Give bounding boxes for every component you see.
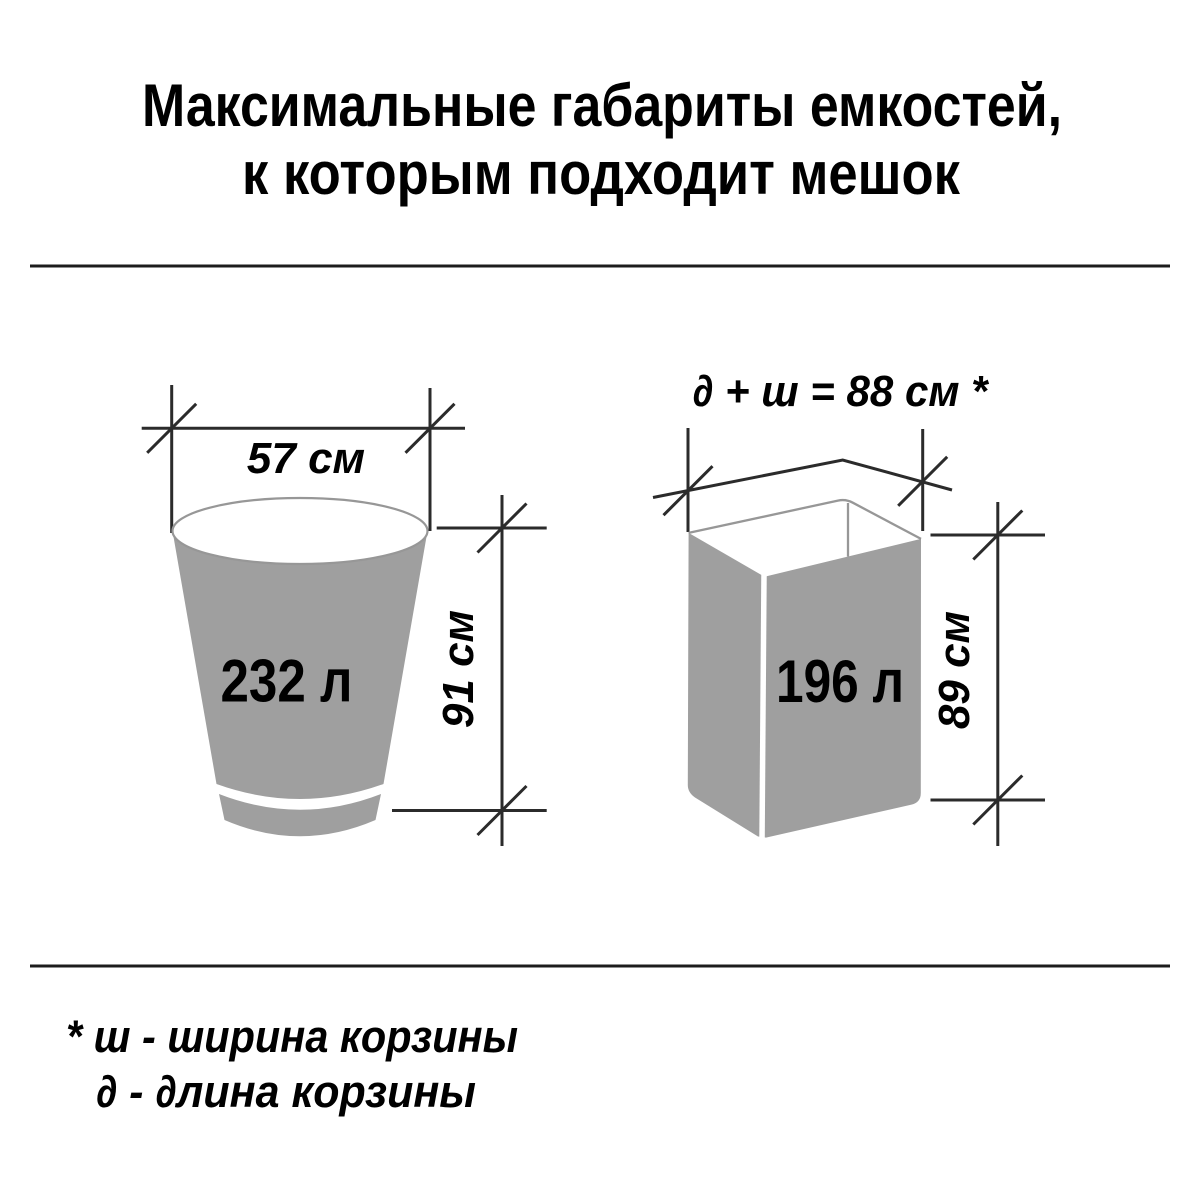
svg-text:* ш - ширина корзины: * ш - ширина корзины: [66, 1011, 518, 1062]
svg-text:к которым подходит мешок: к которым подходит мешок: [242, 140, 961, 207]
svg-text:57 см: 57 см: [247, 434, 365, 483]
svg-text:Максимальные габариты емкостей: Максимальные габариты емкостей,: [142, 72, 1062, 139]
svg-text:∂ + ш = 88 см *: ∂ + ш = 88 см *: [693, 367, 990, 416]
svg-text:232 л: 232 л: [221, 648, 353, 715]
svg-text:196 л: 196 л: [776, 648, 904, 715]
svg-text:91 см: 91 см: [434, 610, 483, 728]
svg-text:89 см: 89 см: [930, 611, 979, 729]
svg-text:∂ - ∂лина корзины: ∂ - ∂лина корзины: [96, 1066, 476, 1117]
